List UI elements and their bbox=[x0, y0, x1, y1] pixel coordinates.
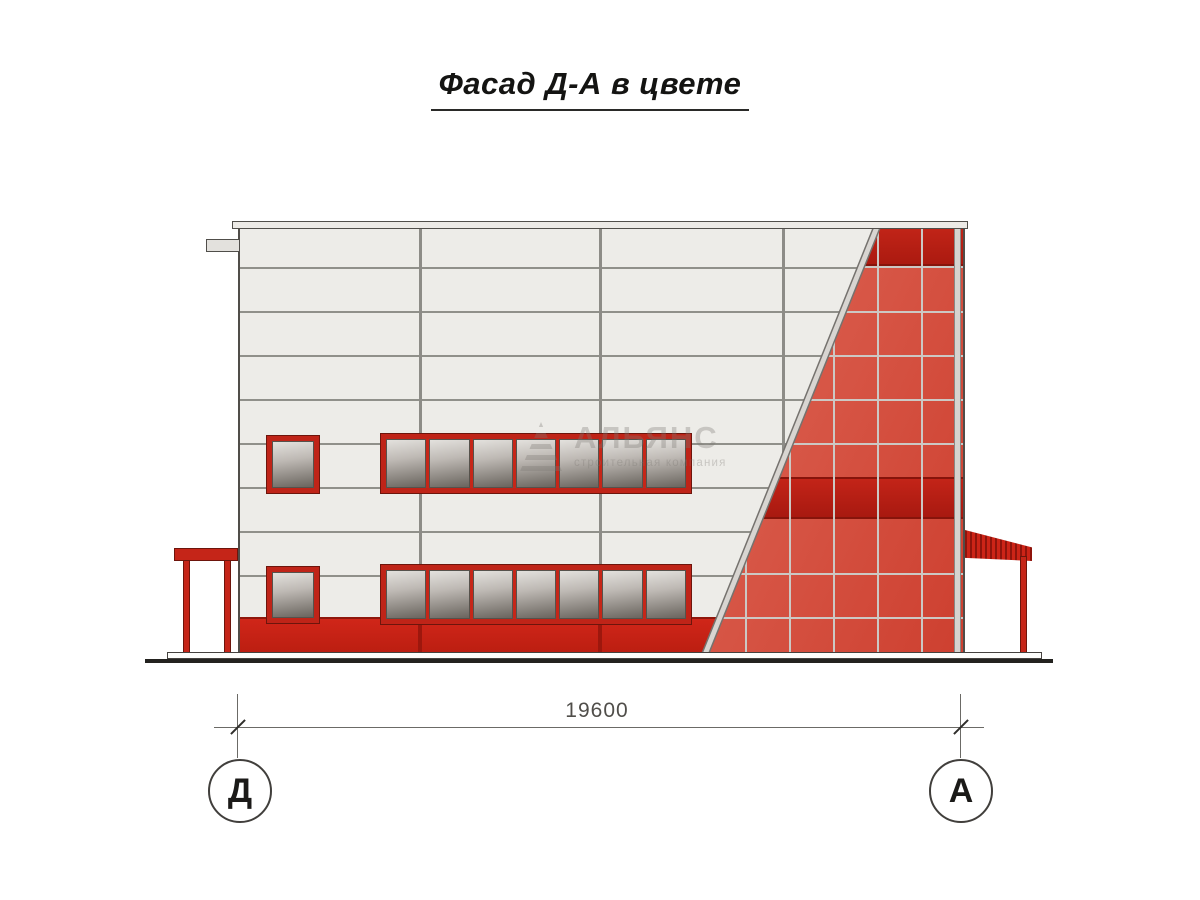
building-right-edge bbox=[963, 222, 965, 657]
watermark-tagline: строительная компания bbox=[574, 457, 727, 469]
window-pane bbox=[429, 439, 469, 488]
roof-cap-strip bbox=[232, 221, 968, 229]
axis-label-left: Д bbox=[228, 772, 252, 811]
right-canopy-post bbox=[1020, 556, 1027, 654]
page-title: Фасад Д-А в цвете bbox=[431, 66, 750, 111]
window-pane bbox=[272, 572, 314, 618]
left-canopy-post-front bbox=[183, 560, 190, 654]
left-canopy-post-rear bbox=[224, 560, 231, 654]
window-pane bbox=[386, 439, 426, 488]
window-pane bbox=[473, 439, 513, 488]
watermark-company: АЛЬЯНС bbox=[574, 422, 727, 453]
window-pane bbox=[516, 570, 556, 619]
plinth-strip bbox=[167, 652, 1042, 659]
window-pane bbox=[473, 570, 513, 619]
window-pane bbox=[646, 570, 686, 619]
window-pane bbox=[559, 570, 599, 619]
dimension-value: 19600 bbox=[552, 699, 642, 723]
watermark-pyramid-icon bbox=[518, 422, 564, 476]
facade-drawing-sheet: Фасад Д-А в цвете bbox=[0, 0, 1200, 900]
axis-marker-right: А bbox=[929, 759, 993, 823]
title-row: Фасад Д-А в цвете bbox=[0, 66, 1190, 111]
watermark: АЛЬЯНС строительная компания bbox=[518, 422, 727, 476]
ground-line bbox=[145, 659, 1053, 663]
building-left-edge bbox=[238, 222, 240, 657]
window-pane bbox=[386, 570, 426, 619]
window-lower-small bbox=[267, 567, 319, 623]
window-upper-small bbox=[267, 436, 319, 493]
window-lower-ribbon bbox=[381, 565, 691, 624]
dimension-line bbox=[214, 727, 984, 728]
axis-label-right: А bbox=[949, 772, 974, 811]
window-pane bbox=[429, 570, 469, 619]
watermark-text: АЛЬЯНС строительная компания bbox=[574, 422, 727, 469]
wall-bracket bbox=[206, 239, 240, 252]
axis-marker-left: Д bbox=[208, 759, 272, 823]
window-pane bbox=[602, 570, 642, 619]
window-pane bbox=[272, 441, 314, 488]
